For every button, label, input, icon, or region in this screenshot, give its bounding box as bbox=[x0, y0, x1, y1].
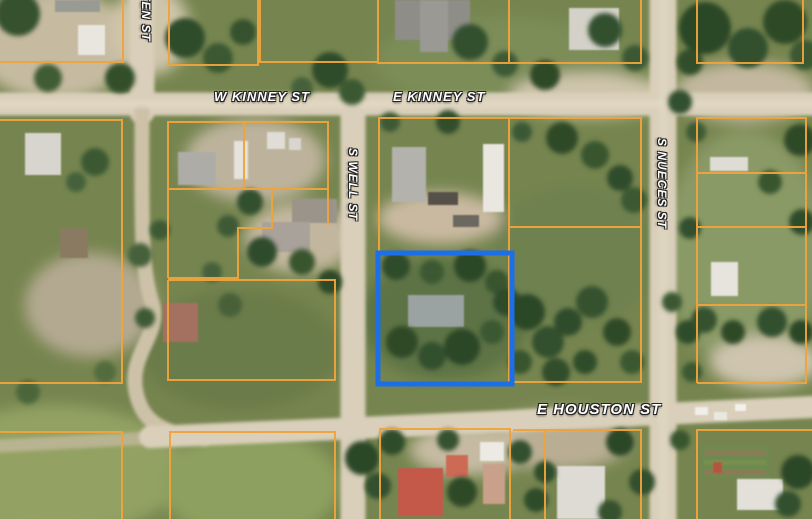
map-viewport[interactable]: W KINNEY ST E KINNEY ST E HOUSTON ST S W… bbox=[0, 0, 812, 519]
aerial-imagery bbox=[0, 0, 812, 519]
